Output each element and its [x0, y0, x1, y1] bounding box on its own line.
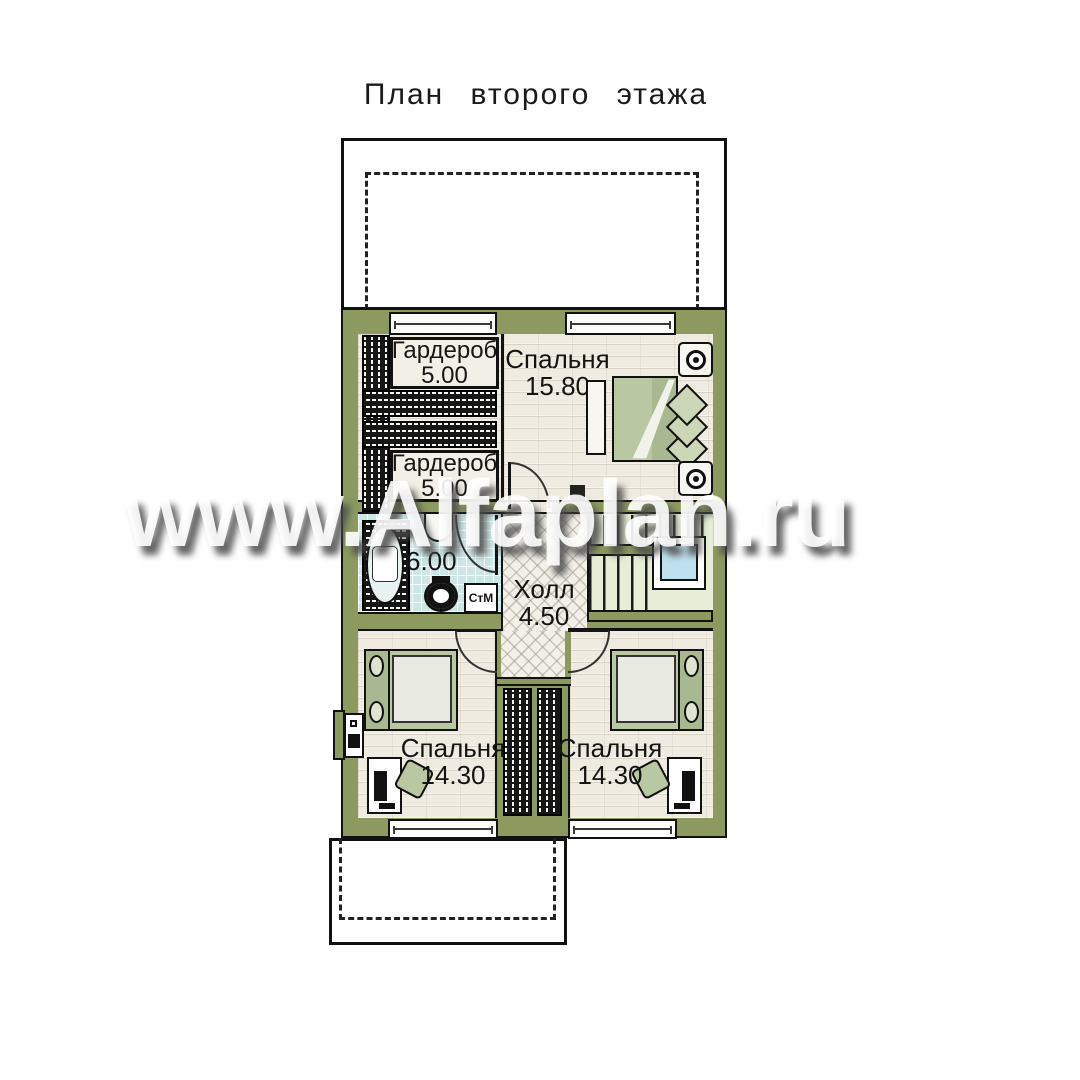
room-label-bedroom-right: Спальня 14.30 [560, 735, 660, 789]
lamp-icon [686, 350, 706, 370]
balcony-top-dashed-outline [365, 172, 699, 310]
room-area: 4.50 [519, 603, 570, 630]
plan-title: План второго этажа [316, 78, 756, 112]
pillow-icon [369, 701, 384, 723]
porch-bottom-dashed-outline [339, 838, 556, 920]
room-label-bedroom-left: Спальня 14.30 [403, 735, 503, 789]
keyboard-icon [674, 803, 690, 809]
room-area: 15.80 [525, 373, 590, 400]
pillow-icon [684, 701, 699, 723]
window-icon [565, 312, 676, 335]
washing-machine-icon: СтМ [464, 583, 498, 613]
room-name: Спальня [401, 735, 505, 762]
room-name: Спальня [505, 346, 609, 373]
flue-duct [350, 720, 357, 727]
room-area: 5.00 [421, 363, 468, 388]
room-name: Спальня [558, 735, 662, 762]
toilet-icon [424, 580, 458, 612]
flue-duct [348, 734, 360, 748]
floor-plan-page: План второго этажа Гардероб 5.00 Гардеро… [0, 0, 1080, 1080]
blanket [392, 655, 452, 723]
room-label-hall: Холл 4.50 [501, 576, 587, 630]
keyboard-icon [379, 803, 395, 809]
flue-box-icon [344, 713, 364, 758]
room-area: 14.30 [577, 762, 642, 789]
room-name: Гардероб [392, 338, 498, 363]
pillow-icon [684, 655, 699, 677]
pillow-icon [369, 655, 384, 677]
room-label-wardrobe-top: Гардероб 5.00 [390, 337, 499, 389]
bed-icon [610, 649, 704, 731]
room-name: Холл [513, 576, 574, 603]
watermark: www.Alfaplan.ru [124, 460, 850, 569]
blanket [616, 655, 676, 723]
bed-icon [364, 649, 458, 731]
closet-rod-icon [362, 390, 497, 417]
computer-icon [682, 771, 695, 801]
computer-icon [374, 771, 387, 801]
interior-wall [497, 677, 571, 686]
closet-rod-icon [503, 688, 532, 816]
nightstand-icon [678, 342, 713, 377]
window-icon [568, 819, 677, 839]
washing-machine-label: СтМ [469, 591, 494, 605]
hall-corridor-floor [501, 631, 565, 677]
room-area: 14.30 [420, 762, 485, 789]
window-icon [388, 819, 498, 839]
closet-rod-icon [362, 421, 497, 448]
desk-icon [667, 757, 702, 814]
stair-handrail [587, 610, 713, 622]
dresser-icon [586, 380, 606, 455]
window-icon [389, 312, 497, 335]
